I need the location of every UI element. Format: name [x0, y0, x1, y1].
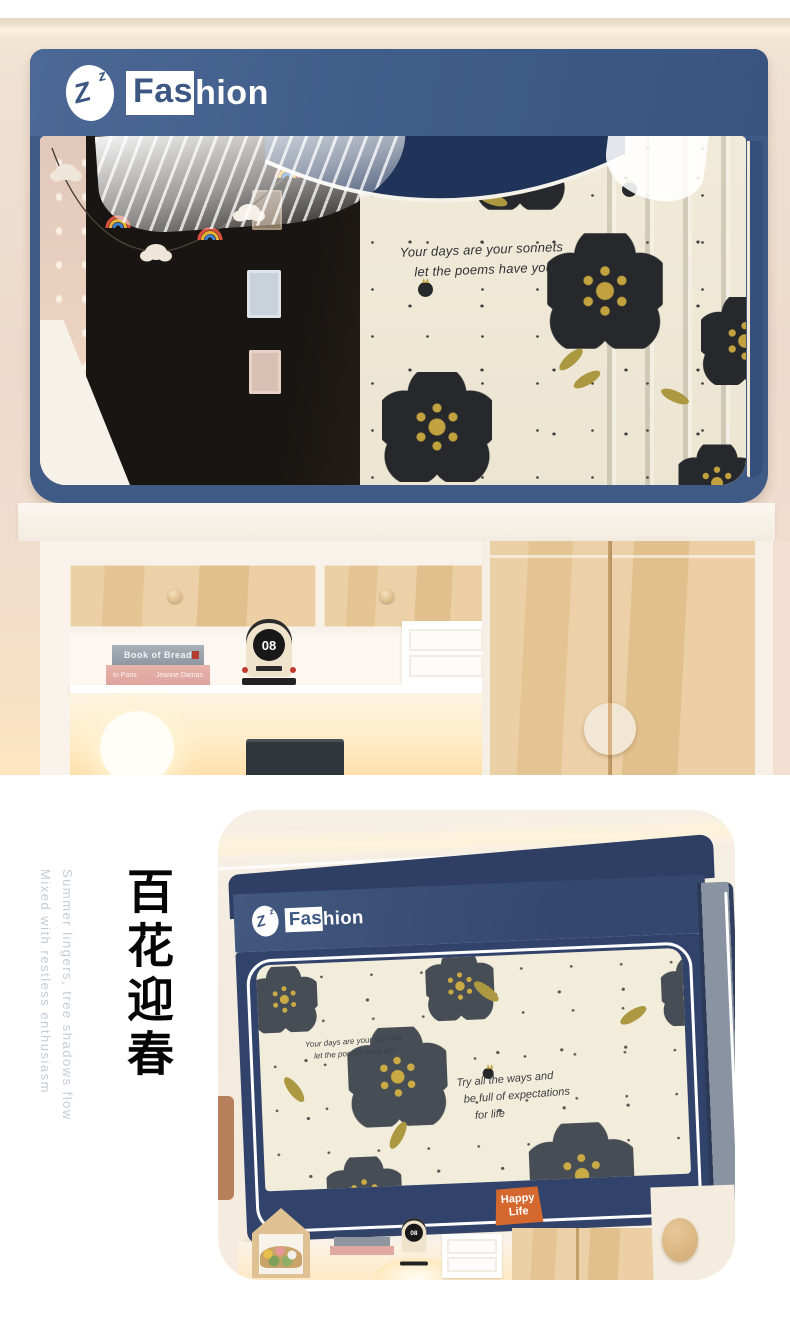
bottom-section: Summer lingers, tree shadows flow Mixed … — [0, 775, 790, 1325]
drawer-knob — [168, 589, 182, 603]
canopy-front-panel: Your days are your sonnets let the poems… — [235, 933, 713, 1244]
book-spine: In Paris Jeanne Damas — [106, 665, 210, 685]
sleep-z-icon: Z z — [63, 62, 117, 123]
logo-z-large: Z — [71, 78, 94, 108]
flower-motif — [679, 445, 747, 486]
sleep-z-icon: Z z — [250, 904, 281, 938]
book-title: In Paris — [113, 672, 137, 679]
wardrobe-handle — [584, 703, 636, 755]
clock-base — [400, 1261, 428, 1265]
bed-canopy-frame: Z z Fas hion — [30, 49, 768, 503]
organizer-slot — [409, 655, 483, 677]
berry-motif — [418, 282, 433, 297]
drawer-organizer — [402, 621, 490, 685]
canopy-side-face — [747, 141, 763, 477]
bed-room-photo: Z z Fas hion — [0, 18, 790, 775]
book-spine: Book of Bread — [112, 645, 204, 665]
badge-line2: Life — [508, 1205, 528, 1219]
drawer-organizer — [442, 1234, 502, 1278]
flower-basket — [260, 1246, 302, 1268]
wordmark-rest: hion — [195, 76, 269, 110]
wordmark-highlight: Fas — [126, 71, 194, 115]
flower-motif — [701, 297, 746, 385]
brand-logo: Z z Fas hion — [66, 62, 269, 124]
brand-logo: Z z Fas hion — [252, 900, 502, 932]
clock-face: 08 — [405, 1224, 423, 1242]
happy-life-badge: Happy Life — [493, 1186, 544, 1226]
drawer-front — [70, 565, 316, 627]
vertical-taglines: Summer lingers, tree shadows flow Mixed … — [34, 869, 78, 1121]
pinned-photo — [249, 350, 281, 394]
curtain-quote: Your days are your sonnets let the poems… — [399, 237, 564, 283]
wood-cabinet — [512, 1228, 660, 1280]
white-piping — [246, 941, 703, 1233]
bed-board — [18, 503, 775, 541]
wardrobe — [490, 541, 755, 775]
window-curtain-edge — [218, 1096, 234, 1200]
clock-label — [256, 666, 282, 671]
brand-wordmark: Fas hion — [285, 905, 365, 932]
clock-face: 08 — [253, 629, 285, 661]
wardrobe-frame-line — [490, 555, 755, 558]
laptop — [246, 739, 344, 775]
book-author: Jeanne Damas — [156, 672, 203, 679]
cabinet-unit: Book of Bread In Paris Jeanne Damas 08 — [0, 541, 790, 775]
drawer-front — [324, 565, 500, 627]
wall-left — [0, 541, 40, 775]
book-spine — [330, 1246, 394, 1255]
drawer-knob — [380, 589, 394, 603]
logo-z-large: Z — [255, 913, 268, 930]
clock-button — [290, 667, 296, 673]
wood-knob — [662, 1218, 698, 1262]
brand-wordmark: Fas hion — [126, 71, 269, 115]
flip-clock: 08 — [242, 619, 296, 685]
organizer-slot — [409, 629, 483, 651]
book-stack — [330, 1237, 394, 1255]
tagline-line2: Mixed with restless enthusiasm — [34, 869, 56, 1121]
cabinet-body: Book of Bread In Paris Jeanne Damas 08 — [40, 541, 773, 775]
shelf-board — [70, 685, 500, 693]
logo-z-small: z — [96, 68, 107, 84]
organizer-slot — [447, 1257, 497, 1272]
curtain-quote-line2: let the poems have you — [414, 257, 564, 282]
desk-lamp-glow — [100, 711, 174, 785]
wardrobe-frame — [755, 541, 773, 775]
canopy-brand-band: Z z Fas hion — [30, 49, 768, 136]
clock-base — [242, 678, 296, 685]
product-photo-card: Z z Fas hion — [218, 810, 735, 1280]
leaf-motif — [556, 345, 586, 373]
canopy-window: Your days are your sonnets let the poems… — [40, 136, 746, 485]
flower-motif — [382, 372, 492, 482]
book-spine — [334, 1237, 390, 1246]
flower-motif — [547, 233, 663, 349]
wardrobe-divider — [482, 541, 490, 775]
tagline-line1: Summer lingers, tree shadows flow — [56, 869, 78, 1121]
flip-clock: 08 — [400, 1218, 428, 1266]
organizer-slot — [447, 1239, 497, 1254]
wordmark-highlight: Fas — [285, 907, 323, 933]
headline-chinese: 百花迎春 — [112, 867, 181, 1083]
logo-z-small: z — [268, 907, 274, 916]
clock-button — [242, 667, 248, 673]
wordmark-rest: hion — [323, 908, 364, 928]
product-detail-image: Z z Fas hion — [0, 18, 790, 1325]
wall-right — [773, 541, 790, 775]
